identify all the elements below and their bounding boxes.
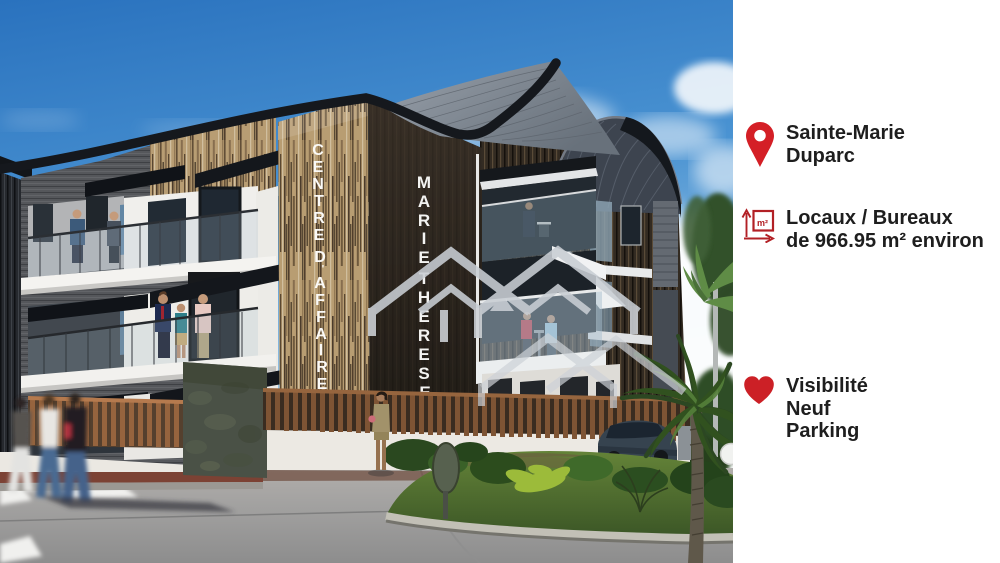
- svg-text:I: I: [422, 229, 427, 248]
- svg-text:E: E: [313, 159, 324, 176]
- svg-text:N: N: [312, 176, 324, 193]
- svg-text:F: F: [316, 309, 326, 326]
- svg-text:C: C: [312, 142, 324, 159]
- svg-text:m²: m²: [757, 218, 768, 228]
- svg-text:R: R: [418, 211, 430, 230]
- svg-text:A: A: [314, 275, 326, 292]
- svg-text:R: R: [418, 326, 430, 345]
- svg-text:A: A: [418, 192, 430, 211]
- svg-text:I: I: [319, 342, 323, 359]
- svg-text:R: R: [316, 359, 328, 376]
- svg-text:M: M: [417, 173, 431, 192]
- svg-text:S: S: [418, 364, 429, 383]
- svg-text:A: A: [315, 326, 327, 343]
- svg-text:E: E: [314, 227, 325, 244]
- svg-text:': ': [322, 264, 324, 275]
- svg-text:R: R: [313, 210, 325, 227]
- svg-text:F: F: [315, 292, 325, 309]
- svg-text:T: T: [314, 193, 324, 210]
- svg-text:E: E: [418, 345, 429, 364]
